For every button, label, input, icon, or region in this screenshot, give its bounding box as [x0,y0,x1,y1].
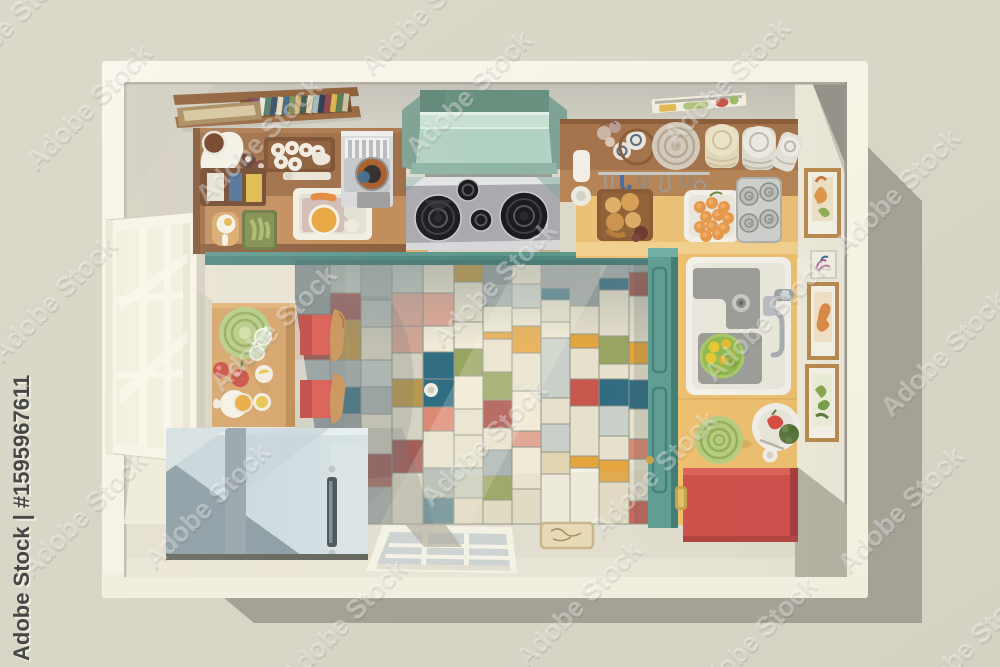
svg-text:Adobe Stock | #1595967611: Adobe Stock | #1595967611 [9,375,34,661]
